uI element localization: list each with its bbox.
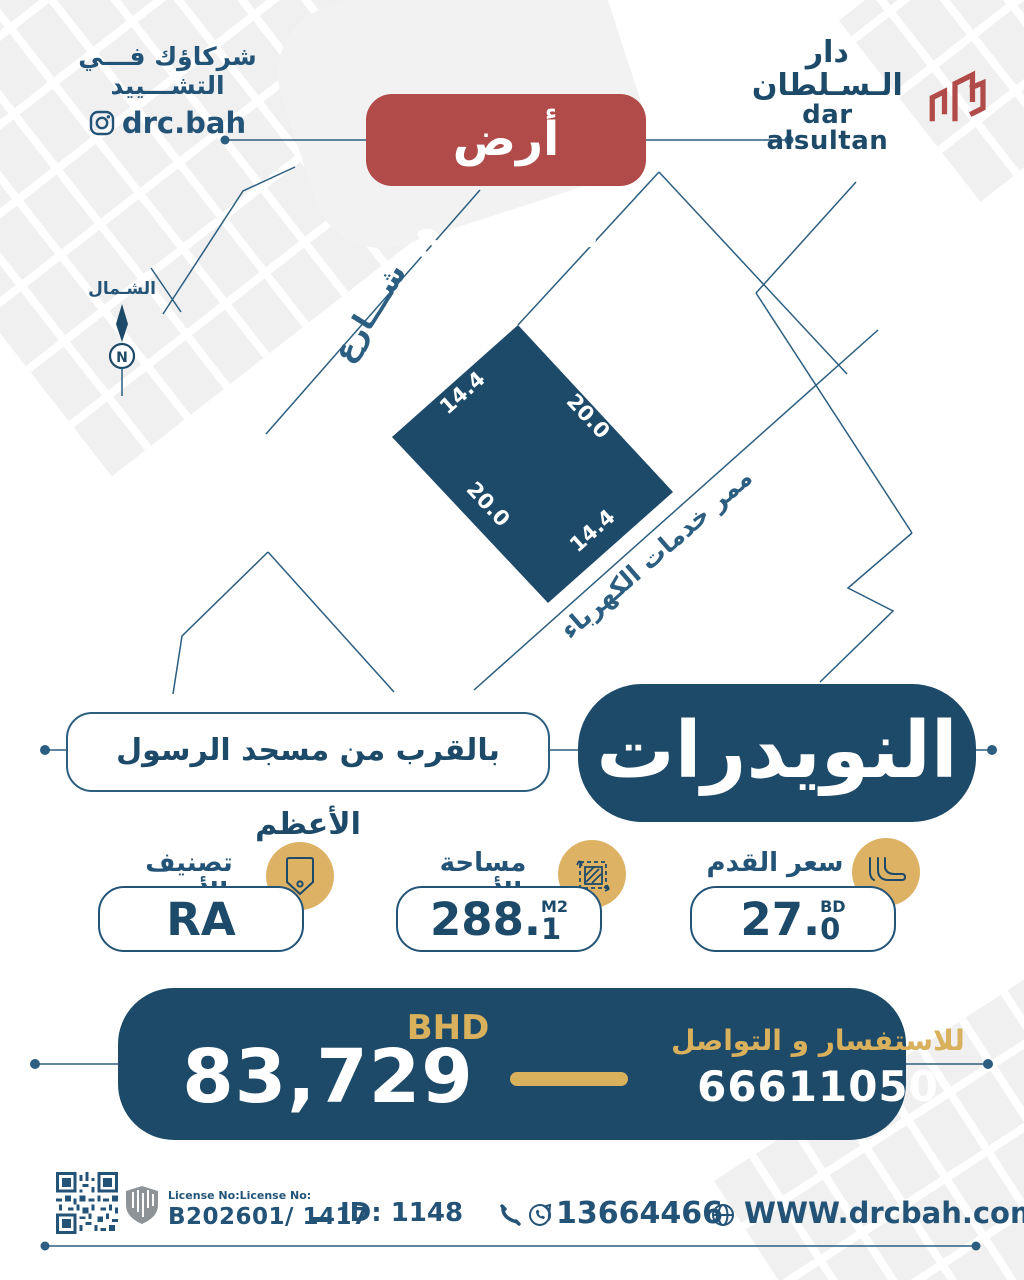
map-zigzag-line — [820, 533, 912, 682]
license-authority-logo — [126, 1186, 158, 1224]
map-line — [756, 182, 856, 293]
map-line — [173, 552, 268, 694]
qr-code — [56, 1172, 118, 1234]
footer-phone[interactable]: 13664466 — [556, 1196, 723, 1231]
connector-dot — [987, 745, 997, 755]
map-line — [268, 552, 394, 692]
tagline: شركاؤك فـــي التشـــييد — [45, 42, 290, 100]
license-label: License No:License No: — [168, 1190, 311, 1202]
brand-logo-icon — [927, 64, 988, 126]
spec-label-foot-price: سعر القدم — [700, 848, 850, 878]
price-box: BHD 83,729 للاستفسار و التواصل 66611050 — [118, 988, 906, 1140]
contact-number[interactable]: 66611050 — [648, 1062, 988, 1111]
connector-dot — [41, 1242, 50, 1251]
map-line — [659, 172, 847, 374]
connector-dot — [40, 745, 50, 755]
poster-root: 14.4 20.0 20.0 14.4 شـــارع ممر خدمات ال… — [0, 0, 1024, 1280]
instagram-handle[interactable]: drc.bah — [122, 106, 246, 140]
area-name-badge: النويدرات — [578, 684, 976, 822]
whatsapp-icon[interactable] — [527, 1202, 553, 1228]
divider-bar — [510, 1072, 628, 1086]
area-value: 288. — [430, 897, 541, 942]
price-amount: 83,729 — [158, 1040, 498, 1114]
brand-name-ar: دار الـسـلطان — [738, 36, 917, 102]
footer-dash — [310, 1217, 332, 1222]
foot-price-value-pill: 27. BD 0 — [690, 886, 896, 952]
street-label: شـــارع — [326, 257, 414, 368]
landmark-pill: بالقرب من مسجد الرسول الأعظم — [66, 712, 550, 792]
north-label: الشـمال — [88, 279, 156, 299]
map-line — [163, 167, 295, 314]
connector-dot — [30, 1059, 40, 1069]
website-url[interactable]: WWW.drcbah.com — [744, 1196, 1024, 1230]
area-value-pill: 288. M2 1 — [396, 886, 602, 952]
north-arrow-icon — [116, 304, 128, 342]
globe-icon — [710, 1202, 736, 1228]
header-left: شركاؤك فـــي التشـــييد drc.bah — [45, 42, 290, 140]
instagram-icon[interactable] — [89, 110, 115, 136]
brand: دار الـسـلطان dar alsultan — [738, 36, 988, 154]
sale-banner: أرض للبيـــــع — [366, 94, 646, 186]
map-line — [756, 293, 912, 533]
connector-dot — [972, 1242, 981, 1251]
compass-letter: N — [116, 350, 128, 366]
classification-value: RA — [166, 897, 235, 942]
contact-label: للاستفسار و التواصل — [648, 1024, 988, 1057]
license-number: B202601/ 1417 — [168, 1204, 368, 1230]
phone-icon[interactable] — [498, 1203, 522, 1227]
brand-name-en: dar alsultan — [738, 102, 917, 154]
foot-price-value: 27. — [740, 897, 820, 942]
classification-value-pill: RA — [98, 886, 304, 952]
north-compass: الشـمال N — [76, 278, 168, 398]
listing-id: ID: 1148 — [340, 1198, 463, 1228]
